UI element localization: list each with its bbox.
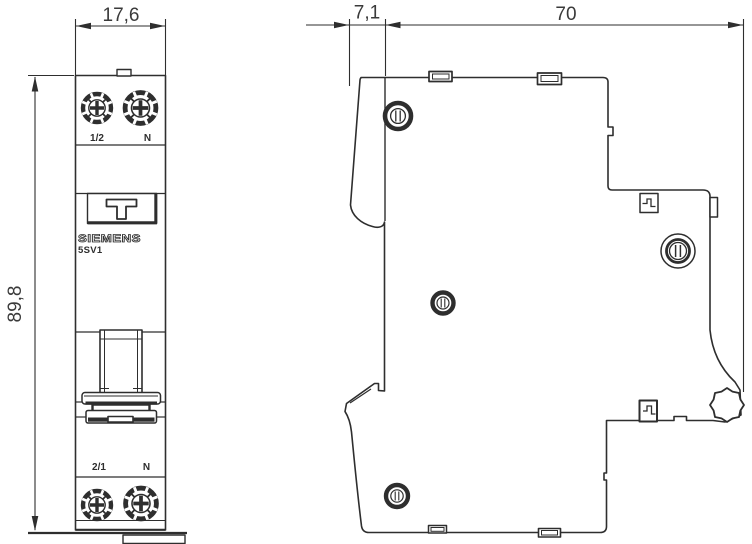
arrowhead-icon — [334, 22, 349, 29]
arrowhead-down-icon — [32, 516, 39, 531]
bottom-notch — [539, 529, 561, 538]
side-profile-outline — [345, 78, 741, 533]
arrowhead-up-icon — [32, 77, 39, 92]
top-tab — [117, 70, 131, 77]
dimension-height: 89,8 — [5, 76, 74, 532]
model-text: 5SV1 — [78, 245, 103, 256]
technical-drawing: 17,6 7,1 70 89,8 1/2 N — [0, 0, 752, 544]
front-view: 1/2 N SIEMENS 5SV1 — [28, 70, 187, 544]
arrowhead-left-icon — [76, 23, 91, 30]
din-release-knob — [710, 388, 744, 422]
drawing-page: 17,6 7,1 70 89,8 1/2 N — [0, 0, 752, 544]
arrowhead-icon — [728, 22, 743, 29]
dimension-front-depth-value: 7,1 — [354, 3, 380, 24]
dimension-body-depth-value: 70 — [555, 4, 576, 25]
toggle-base-tab — [108, 417, 133, 423]
terminal-screw-icon — [82, 93, 112, 123]
busbar-clip — [640, 194, 658, 213]
terminal-screw-icon — [82, 490, 112, 520]
arrowhead-right-icon — [150, 23, 165, 30]
side-view — [345, 72, 744, 538]
terminal-screw-icon — [124, 92, 157, 125]
rear-rib — [710, 198, 718, 218]
breaker-body-outline — [76, 76, 166, 531]
arrowhead-icon — [386, 22, 401, 29]
terminal-label-top-left: 1/2 — [90, 133, 104, 144]
top-clip — [538, 73, 562, 85]
side-screw-icon — [385, 103, 411, 129]
side-screw-icon — [386, 485, 408, 507]
brand-text: SIEMENS — [78, 233, 141, 245]
bottom-notch — [429, 526, 447, 534]
dimension-height-value: 89,8 — [5, 286, 26, 323]
terminal-screw-icon — [125, 487, 158, 520]
top-clip — [429, 72, 452, 82]
dimension-width-value: 17,6 — [103, 5, 140, 26]
terminal-label-bottom-right: N — [143, 462, 150, 473]
terminal-label-top-right: N — [144, 133, 151, 144]
side-screw-icon — [433, 293, 454, 314]
mounting-foot — [123, 535, 185, 544]
side-screw-icon — [661, 234, 695, 268]
din-rail-clip — [640, 401, 658, 422]
dimension-width: 17,6 — [76, 5, 166, 75]
terminal-label-bottom-left: 2/1 — [92, 462, 106, 473]
